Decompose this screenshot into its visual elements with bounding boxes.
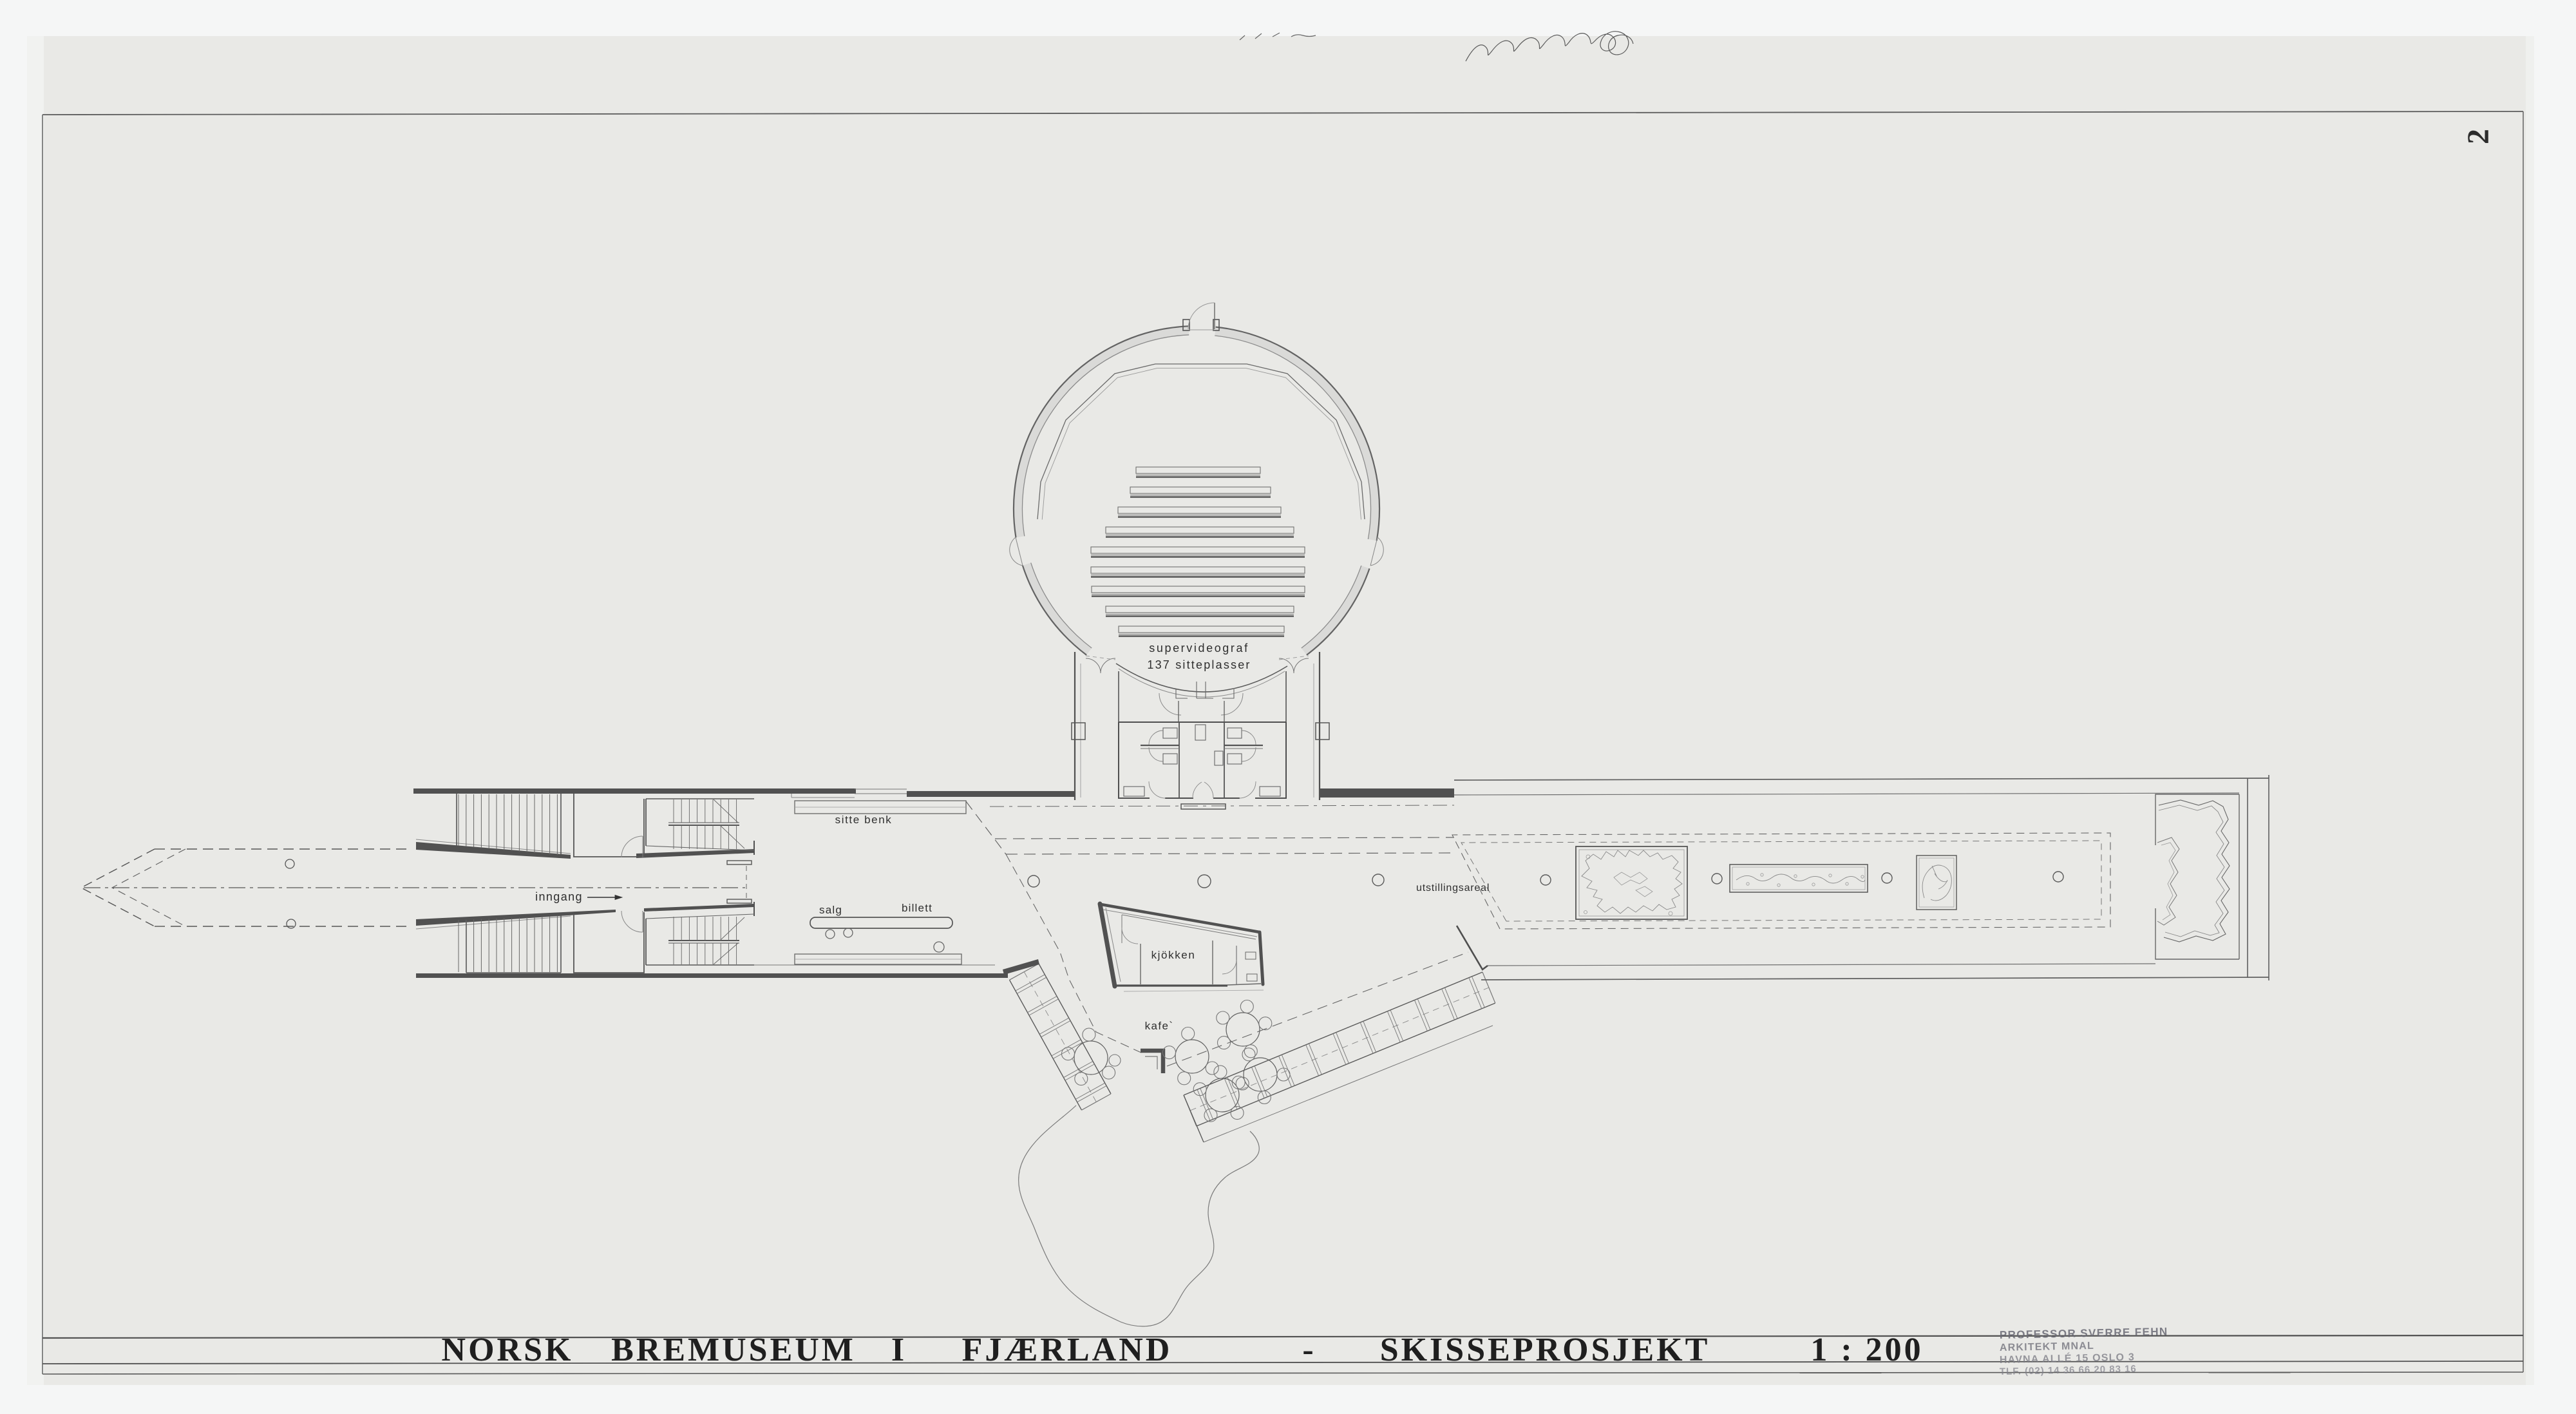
- svg-text:utstillingsareal: utstillingsareal: [1416, 883, 1490, 893]
- svg-text:137 sitteplasser: 137 sitteplasser: [1147, 658, 1251, 671]
- svg-text:2: 2: [2461, 129, 2495, 144]
- svg-text:supervideograf: supervideograf: [1149, 642, 1249, 654]
- svg-text:kafe`: kafe`: [1145, 1020, 1174, 1032]
- svg-text:billett: billett: [902, 902, 933, 914]
- svg-text:kjökken: kjökken: [1151, 949, 1196, 961]
- svg-text:FJÆRLAND: FJÆRLAND: [962, 1332, 1173, 1368]
- svg-text:BREMUSEUM: BREMUSEUM: [611, 1332, 856, 1368]
- svg-text:ARKITEKT MNAL: ARKITEKT MNAL: [2000, 1341, 2094, 1353]
- svg-text:-: -: [1302, 1332, 1316, 1368]
- svg-text:I: I: [891, 1332, 907, 1368]
- svg-text:salg: salg: [819, 904, 842, 916]
- svg-text:sitte benk: sitte benk: [835, 814, 893, 826]
- svg-text:inngang: inngang: [535, 890, 583, 903]
- svg-text:SKISSEPROSJEKT: SKISSEPROSJEKT: [1380, 1332, 1710, 1368]
- svg-text:1 : 200: 1 : 200: [1810, 1332, 1923, 1368]
- svg-text:NORSK: NORSK: [442, 1332, 574, 1368]
